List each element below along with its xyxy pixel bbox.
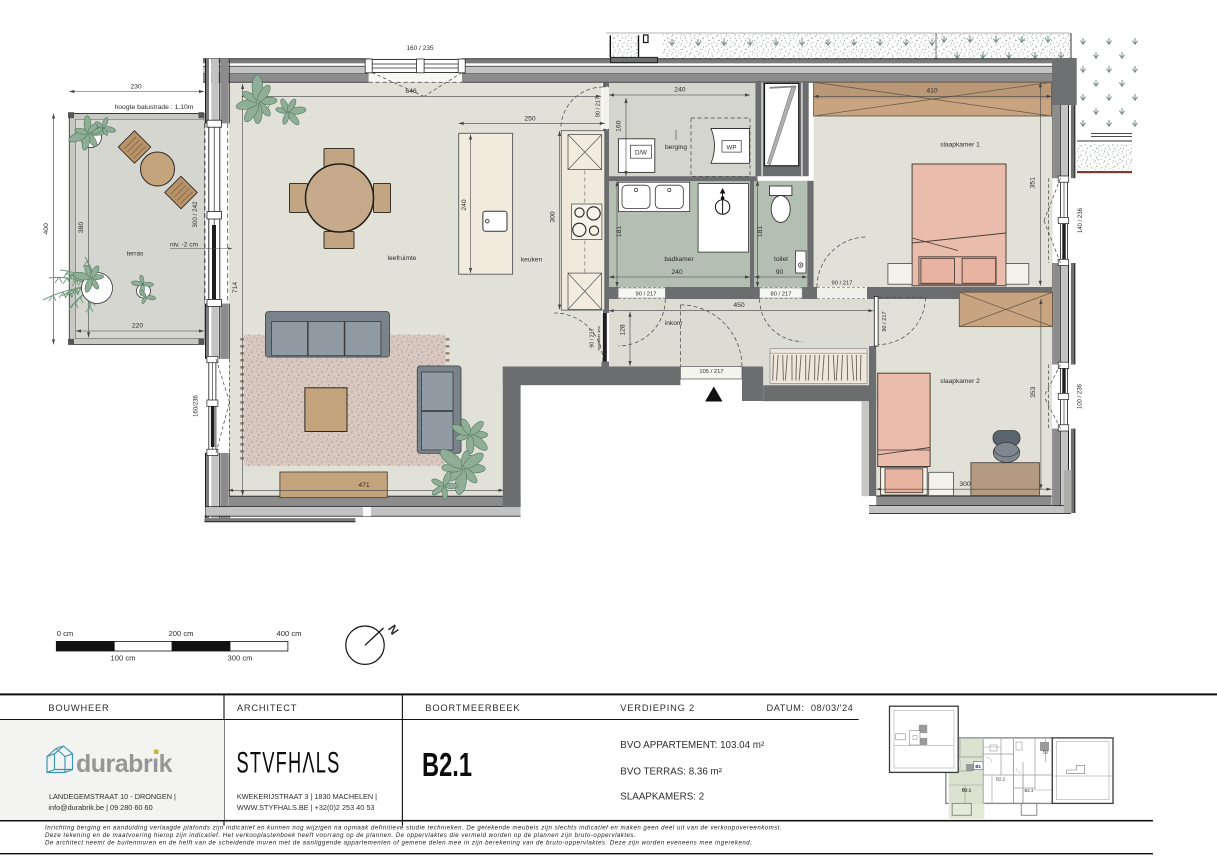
svg-text:240: 240 [461,199,468,211]
svg-text:D/W: D/W [635,150,647,157]
svg-text:181: 181 [757,226,764,238]
svg-text:slaapkamer 1: slaapkamer 1 [940,142,980,149]
svg-text:100 / 236: 100 / 236 [1078,383,1084,409]
svg-text:230: 230 [130,83,142,90]
svg-text:0 cm: 0 cm [57,629,73,638]
svg-text:160/236: 160/236 [194,395,200,417]
svg-text:B2.1: B2.1 [962,788,972,793]
svg-text:220: 220 [132,323,144,330]
svg-text:badkamer: badkamer [664,256,694,263]
svg-text:450: 450 [733,302,745,309]
svg-text:300: 300 [550,211,557,223]
svg-text:WWW.STYFHALS.BE | +32(0)2 253: WWW.STYFHALS.BE | +32(0)2 253 40 53 [237,803,375,812]
svg-text:BOUWHEER: BOUWHEER [48,703,109,713]
svg-text:160: 160 [616,120,623,132]
svg-text:100 cm: 100 cm [111,654,136,663]
svg-text:240: 240 [674,86,686,93]
svg-text:inkom: inkom [665,320,683,327]
svg-text:VERDIEPING 2: VERDIEPING 2 [620,703,695,713]
svg-text:646: 646 [405,88,417,95]
svg-text:300 / 242: 300 / 242 [192,201,199,228]
svg-text:90 / 217: 90 / 217 [832,281,853,287]
svg-text:80 / 217: 80 / 217 [771,292,792,298]
svg-text:B2: B2 [1043,749,1049,754]
svg-text:niv. -2 cm: niv. -2 cm [170,242,199,249]
svg-text:90: 90 [776,269,784,276]
svg-text:471: 471 [358,482,370,489]
svg-text:200 cm: 200 cm [169,629,194,638]
svg-text:KWEKERIJSTRAAT 3 | 1830 MACHEL: KWEKERIJSTRAAT 3 | 1830 MACHELEN | [237,792,377,801]
svg-text:351: 351 [1029,177,1036,189]
svg-text:300 cm: 300 cm [228,654,253,663]
svg-text:410: 410 [926,88,938,95]
svg-text:250: 250 [524,115,536,122]
svg-text:400: 400 [43,223,50,235]
svg-text:hoogte balustrade : 1.10m: hoogte balustrade : 1.10m [115,104,194,111]
svg-text:240: 240 [671,269,683,276]
svg-text:leefruimte: leefruimte [388,255,417,262]
svg-text:353: 353 [1030,386,1037,398]
svg-text:08/03/'24: 08/03/'24 [811,703,853,713]
svg-text:slaapkamer 2: slaapkamer 2 [940,378,980,385]
svg-text:BVO TERRAS: 8.36 m²: BVO TERRAS: 8.36 m² [620,767,722,778]
svg-text:LANDEGEMSTRAAT 10 - DRONGEN |: LANDEGEMSTRAAT 10 - DRONGEN | [49,792,176,801]
svg-text:toilet: toilet [774,256,788,263]
svg-text:400 cm: 400 cm [277,629,302,638]
svg-text:105 / 217: 105 / 217 [699,369,723,375]
svg-text:STVFHΛLS: STVFHΛLS [237,747,341,780]
svg-text:380: 380 [78,222,85,234]
svg-text:181: 181 [616,226,623,238]
svg-text:90 / 217: 90 / 217 [590,328,596,347]
svg-text:300: 300 [959,481,971,488]
svg-text:140 / 236: 140 / 236 [1078,207,1084,233]
svg-text:BVO APPARTEMENT: 103.04 m²: BVO APPARTEMENT: 103.04 m² [620,740,765,751]
svg-text:B2.2: B2.2 [996,777,1006,782]
svg-text:durabrık: durabrık [76,750,173,778]
svg-text:160 / 235: 160 / 235 [406,45,433,52]
svg-text:B2.1: B2.1 [422,746,472,783]
svg-text:terras: terras [127,251,145,258]
svg-text:beglaasde deur: beglaasde deur [597,325,601,351]
svg-text:90 / 217: 90 / 217 [882,311,888,331]
svg-text:128: 128 [620,324,627,336]
svg-text:Deze tekening en de maatvoerin: Deze tekening en de maatvoering hierop z… [45,832,636,839]
svg-text:keuken: keuken [521,257,543,264]
svg-text:B2.3: B2.3 [1024,788,1034,793]
svg-text:714: 714 [232,282,239,294]
svg-text:Inrichting berging en aanduidi: Inrichting berging en aanduiding verlaag… [45,825,782,832]
svg-text:ARCHITECT: ARCHITECT [237,703,297,713]
svg-text:De architect neemt de buitenmu: De architect neemt de buitenmuren en de … [45,840,752,847]
svg-text:90 / 217: 90 / 217 [636,292,657,298]
svg-text:DATUM:: DATUM: [767,703,805,713]
svg-text:info@durabrik.be | 09 280 60 6: info@durabrik.be | 09 280 60 60 [48,803,152,812]
svg-text:berging: berging [665,144,687,151]
svg-text:80 / 217: 80 / 217 [596,97,602,117]
svg-text:SLAAPKAMERS: 2: SLAAPKAMERS: 2 [620,792,704,803]
svg-text:B1: B1 [975,764,981,769]
svg-text:BOORTMEERBEEK: BOORTMEERBEEK [425,703,520,713]
svg-text:WP: WP [727,145,737,152]
